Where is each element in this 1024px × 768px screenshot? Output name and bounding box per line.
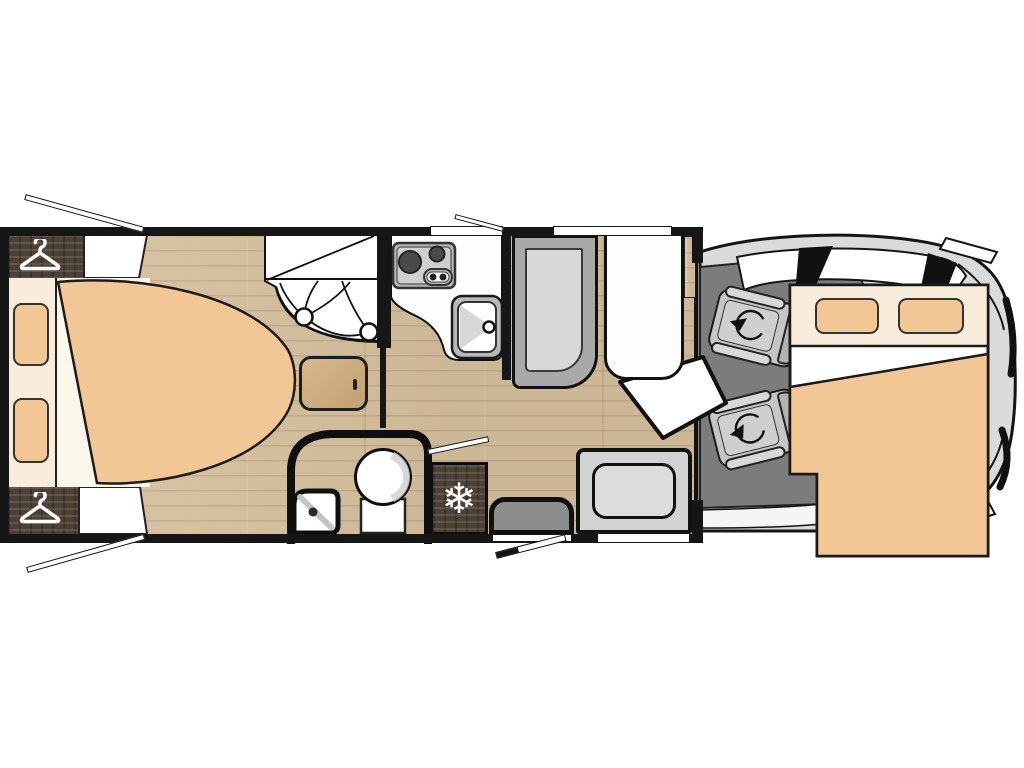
window-lounge-top [553,226,672,236]
hob-knob [430,274,437,281]
wall-shower-divider [377,228,391,348]
window-lounge-bottom [597,533,690,543]
window-reveal-rear-bottom [75,485,151,537]
fridge: ❄ [430,462,488,535]
drop-bed-duvet [790,354,988,556]
motorhome-floorplan: ❄ [0,0,1024,768]
curtain-roller [361,324,378,341]
sink-drain [484,322,495,333]
drop-bed-pillow [899,299,963,333]
curtain-roller [296,309,313,326]
snowflake-icon: ❄ [441,478,476,520]
kitchen-block [388,232,506,364]
hob-burner [430,247,445,262]
bed-pillow [13,303,49,366]
travel-bench-seat [576,448,692,534]
hob-knob [440,274,447,281]
bench-backrest [592,463,676,519]
corner-shower [262,232,382,348]
toilet-bowl [356,450,411,505]
clothes-hanger-icon [17,239,63,275]
entrance-step [489,497,574,535]
nightstand-handle [353,379,357,390]
sofa-cushion [525,248,583,372]
wall-washroom-link [380,348,386,428]
wall-front-stub-bottom [692,500,703,543]
clothes-hanger-icon [17,492,63,528]
nightstand [299,356,368,411]
washroom [282,424,438,544]
wall-kitchen-divider [502,227,511,380]
drop-bed-pillow [816,299,878,333]
drop-down-bed [787,282,991,560]
wall-rear [0,227,9,543]
bed-pillow [13,398,49,463]
hob-burner [399,251,421,273]
basin-drain [309,508,318,517]
wall-front-stub-top [692,227,703,263]
lounge-seat-white [604,233,684,380]
lounge-sofa-gray [512,235,598,389]
